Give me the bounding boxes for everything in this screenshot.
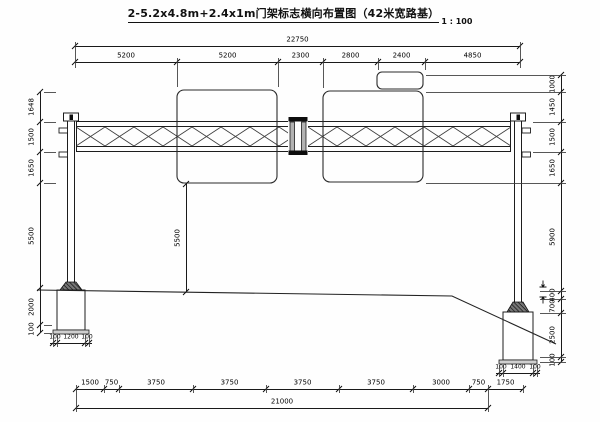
left-column-cap-bolt (70, 115, 74, 121)
dim-label: 3750 (221, 380, 239, 387)
dim-label: 5900 (550, 228, 557, 246)
extension-line (533, 152, 566, 153)
extension-line (76, 385, 77, 412)
right-column-tab-upper (522, 128, 531, 133)
extension-line (499, 365, 500, 377)
extension-line (469, 385, 470, 393)
dim-label: 1500 (550, 128, 557, 146)
dim-label: 2500 (550, 326, 557, 344)
dim-label: 1400 (510, 364, 525, 371)
extension-line (523, 385, 524, 393)
dimension-line (76, 389, 523, 390)
extension-line (540, 291, 566, 292)
left-foundation (53, 290, 89, 334)
left-column-tab-upper (59, 128, 68, 133)
dim-label: 5200 (219, 53, 237, 60)
dim-label: 100 (29, 322, 36, 335)
dimension-line (40, 92, 41, 333)
dim-label: 1500 (81, 380, 99, 387)
extension-line (89, 335, 90, 347)
dim-label: 3000 (432, 380, 450, 387)
extension-line (44, 122, 56, 123)
dimension-line (186, 184, 187, 292)
extension-line (57, 335, 58, 347)
extension-line (339, 385, 340, 393)
extension-line (177, 58, 178, 87)
truss-splice-joint (288, 116, 308, 157)
extension-line (533, 122, 566, 123)
dim-label: 1750 (497, 380, 515, 387)
dim-label: 2000 (29, 298, 36, 316)
dim-label: 2800 (342, 53, 360, 60)
dimension-line (76, 408, 488, 409)
drawing-sheet: 2-5.2x4.8m+2.4x1m门架标志横向布置图（42米宽路基） 1 : 1… (0, 0, 600, 422)
extension-line (266, 385, 267, 393)
dim-label: 1648 (29, 98, 36, 116)
dim-label: 1500 (29, 128, 36, 146)
dim-label: 5200 (117, 53, 135, 60)
dim-label: 3750 (294, 380, 312, 387)
dimension-line (75, 46, 520, 47)
dim-label: 750 (105, 380, 118, 387)
datum-mark-upper (540, 281, 547, 288)
left-anchor-base (60, 282, 82, 290)
dim-label: 1650 (550, 159, 557, 177)
right-column-tab-lower (522, 152, 531, 157)
dim-label: 1450 (550, 98, 557, 116)
dim-label: 2400 (393, 53, 411, 60)
extension-line (426, 92, 566, 93)
dim-label: 1650 (29, 159, 36, 177)
dim-label: 100 (81, 334, 92, 341)
extension-line (378, 58, 379, 70)
extension-line (540, 313, 566, 314)
dim-label: 3750 (147, 380, 165, 387)
left-column-tab-lower (59, 152, 68, 157)
extension-line (540, 362, 566, 363)
extension-line (53, 335, 54, 347)
sign-panel-small (377, 72, 423, 89)
extension-line (323, 58, 324, 88)
extension-line (488, 385, 489, 412)
extension-line (533, 365, 534, 377)
extension-line (425, 58, 426, 70)
dim-label: 1000 (550, 75, 557, 93)
extension-line (540, 357, 566, 358)
dim-label: 21000 (271, 399, 293, 406)
ground-line (37, 290, 556, 344)
extension-line (520, 42, 521, 68)
structure-svg (0, 0, 600, 422)
dim-label: 2300 (292, 53, 310, 60)
dim-label: 100 (495, 364, 506, 371)
extension-line (85, 335, 86, 347)
dim-label: 4850 (464, 53, 482, 60)
extension-line (75, 42, 76, 68)
extension-line (44, 92, 56, 93)
dim-label: 1200 (63, 334, 78, 341)
extension-line (44, 183, 56, 184)
dim-label: 100 (529, 364, 540, 371)
extension-line (540, 299, 566, 300)
dimension-ticks (37, 43, 564, 411)
extension-line (44, 325, 52, 326)
dim-label: 5500 (175, 229, 182, 247)
extension-line (426, 183, 566, 184)
datum-mark-lower (540, 297, 547, 304)
drawing-canvas: 2275052005200230028002400485016481500165… (0, 0, 600, 422)
dimension-line (75, 62, 520, 63)
extension-line (503, 365, 504, 377)
extension-line (537, 365, 538, 377)
dimension-line (561, 75, 562, 362)
dim-label: 700 (550, 299, 557, 312)
extension-line (44, 152, 56, 153)
extension-line (44, 333, 52, 334)
extension-line (413, 385, 414, 393)
extension-line (426, 75, 566, 76)
extension-line (278, 58, 279, 87)
splice-flange-top (289, 117, 308, 122)
right-column-cap-bolt (517, 115, 521, 121)
dim-label: 750 (472, 380, 485, 387)
dim-label: 100 (49, 334, 60, 341)
right-anchor-base (507, 302, 529, 312)
extension-line (119, 385, 120, 393)
extension-line (193, 385, 194, 393)
dim-label: 100 (550, 353, 557, 366)
dim-label: 22750 (286, 37, 308, 44)
extension-line (104, 385, 105, 393)
dim-label: 3750 (367, 380, 385, 387)
splice-flange-bottom (289, 151, 308, 156)
dim-label: 5500 (29, 227, 36, 245)
